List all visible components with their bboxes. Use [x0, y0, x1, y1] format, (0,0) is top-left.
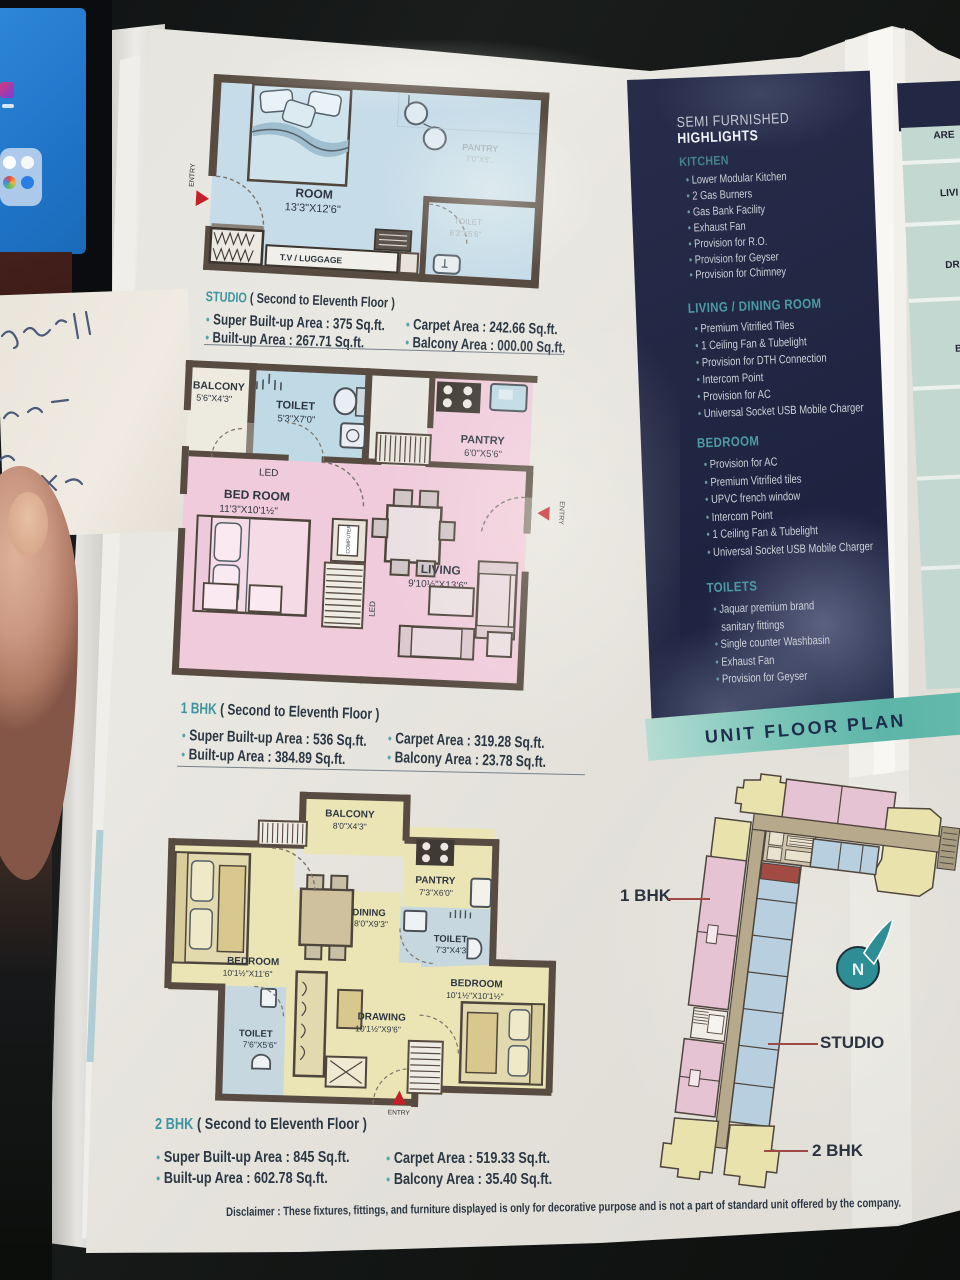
svg-text:5'3"X7'0": 5'3"X7'0" [277, 413, 315, 426]
svg-text:ENTRY: ENTRY [189, 163, 197, 187]
svg-text:TOILET: TOILET [276, 399, 316, 413]
svg-text:10'1½"X10'1½": 10'1½"X10'1½" [446, 990, 504, 1002]
svg-text:TOILET: TOILET [239, 1028, 273, 1040]
svg-text:5'6"X4'3": 5'6"X4'3" [196, 393, 232, 405]
svg-text:DINING: DINING [352, 907, 386, 919]
svg-text:BALCONY: BALCONY [193, 379, 245, 393]
svg-text:PANTRY: PANTRY [415, 875, 456, 887]
svg-text:BALCONY: BALCONY [325, 808, 375, 820]
svg-text:8'0"X9'3": 8'0"X9'3" [354, 918, 388, 929]
svg-text:7'3"X4'3": 7'3"X4'3" [435, 945, 469, 956]
svg-text:7'3"X6'0": 7'3"X6'0" [419, 887, 453, 898]
svg-text:7'6"X5'6": 7'6"X5'6" [243, 1039, 277, 1050]
svg-text:BEDROOM: BEDROOM [450, 978, 503, 990]
svg-text:ROOM: ROOM [295, 186, 333, 202]
svg-text:DRAWING: DRAWING [357, 1011, 406, 1023]
svg-text:10'1½"X11'6": 10'1½"X11'6" [223, 968, 273, 979]
svg-text:8'0"X4'3": 8'0"X4'3" [333, 821, 367, 832]
svg-text:LED: LED [259, 467, 279, 479]
svg-text:BED ROOM: BED ROOM [224, 487, 291, 504]
svg-text:BEDROOM: BEDROOM [227, 956, 280, 968]
svg-text:10'1½"X9'6": 10'1½"X9'6" [355, 1023, 401, 1034]
svg-text:LED: LED [368, 601, 378, 617]
svg-text:N: N [852, 960, 864, 979]
